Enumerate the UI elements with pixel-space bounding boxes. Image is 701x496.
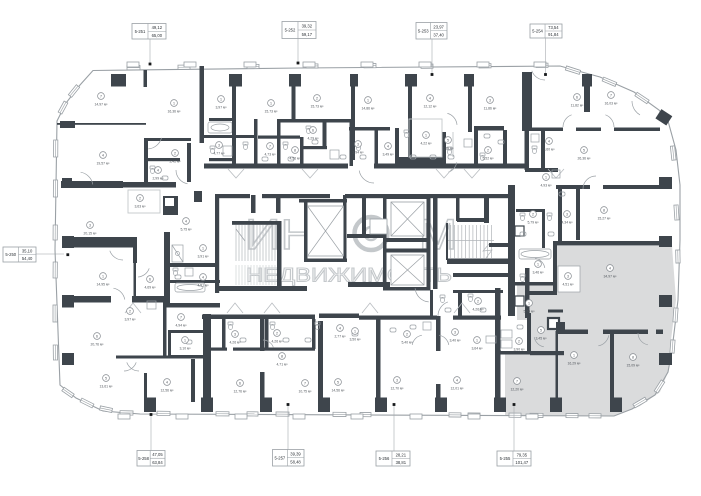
svg-text:58,48: 58,48 bbox=[290, 460, 301, 465]
svg-text:59,17: 59,17 bbox=[302, 32, 313, 37]
svg-text:14,97 м²: 14,97 м² bbox=[95, 103, 109, 107]
svg-text:28,21: 28,21 bbox=[396, 452, 407, 457]
svg-text:15,73 м²: 15,73 м² bbox=[311, 105, 325, 109]
svg-text:2: 2 bbox=[276, 331, 278, 335]
svg-text:3,09 м²: 3,09 м² bbox=[442, 147, 454, 151]
svg-text:3: 3 bbox=[89, 223, 91, 227]
svg-text:49,12: 49,12 bbox=[152, 25, 163, 30]
svg-text:3,63 м²: 3,63 м² bbox=[134, 205, 146, 209]
svg-text:2: 2 bbox=[532, 212, 534, 216]
svg-text:73,54: 73,54 bbox=[548, 25, 559, 30]
svg-text:5,40 м²: 5,40 м² bbox=[401, 341, 413, 345]
svg-text:1: 1 bbox=[354, 329, 356, 333]
svg-text:5: 5 bbox=[337, 380, 339, 384]
svg-text:1: 1 bbox=[537, 262, 539, 266]
svg-text:38,81: 38,81 bbox=[396, 460, 407, 465]
svg-text:5-256: 5-256 bbox=[379, 456, 390, 461]
svg-text:7: 7 bbox=[304, 381, 306, 385]
svg-text:1: 1 bbox=[476, 338, 478, 342]
svg-text:14,86 м²: 14,86 м² bbox=[362, 107, 376, 111]
svg-text:3,64 м²: 3,64 м² bbox=[471, 347, 483, 351]
svg-text:54,40: 54,40 bbox=[22, 256, 33, 261]
svg-text:4,93 м²: 4,93 м² bbox=[540, 184, 552, 188]
svg-text:7: 7 bbox=[610, 93, 612, 97]
svg-text:8: 8 bbox=[294, 148, 296, 152]
svg-text:47,05: 47,05 bbox=[152, 452, 163, 457]
svg-text:12,01 м²: 12,01 м² bbox=[451, 387, 465, 391]
svg-text:3,90 м²: 3,90 м² bbox=[513, 348, 525, 352]
svg-text:2: 2 bbox=[129, 309, 131, 313]
svg-text:5: 5 bbox=[105, 376, 107, 380]
svg-text:4,26 м²: 4,26 м² bbox=[472, 308, 484, 312]
svg-text:3: 3 bbox=[234, 332, 236, 336]
svg-text:4,29 м²: 4,29 м² bbox=[307, 137, 319, 141]
svg-text:2: 2 bbox=[518, 339, 520, 343]
svg-text:2: 2 bbox=[406, 332, 408, 336]
svg-text:2: 2 bbox=[174, 151, 176, 155]
svg-text:7: 7 bbox=[100, 94, 102, 98]
svg-text:1: 1 bbox=[545, 175, 547, 179]
svg-text:5: 5 bbox=[583, 148, 585, 152]
svg-text:3,60 м²: 3,60 м² bbox=[543, 148, 555, 152]
svg-text:3,49 м²: 3,49 м² bbox=[382, 153, 394, 157]
svg-text:3,91 м²: 3,91 м² bbox=[197, 255, 209, 259]
svg-text:6: 6 bbox=[312, 128, 314, 132]
svg-text:39,39: 39,39 bbox=[290, 451, 301, 456]
svg-text:2,99 м²: 2,99 м² bbox=[152, 177, 164, 181]
svg-text:3,40 м²: 3,40 м² bbox=[449, 339, 461, 343]
svg-text:5-250: 5-250 bbox=[5, 252, 16, 257]
svg-text:4: 4 bbox=[429, 96, 431, 100]
svg-text:2: 2 bbox=[487, 148, 489, 152]
svg-text:12,56 м²: 12,56 м² bbox=[161, 389, 175, 393]
svg-text:4: 4 bbox=[185, 219, 187, 223]
svg-text:16,29 м²: 16,29 м² bbox=[568, 362, 582, 366]
svg-text:5: 5 bbox=[540, 328, 542, 332]
svg-text:5,79 м²: 5,79 м² bbox=[527, 221, 539, 225]
svg-text:4,73 м²: 4,73 м² bbox=[264, 153, 276, 157]
svg-text:8: 8 bbox=[632, 355, 634, 359]
svg-text:6: 6 bbox=[576, 95, 578, 99]
svg-text:39,32: 39,32 bbox=[302, 23, 313, 28]
svg-text:15,27 м²: 15,27 м² bbox=[598, 217, 612, 221]
svg-text:4,22 м²: 4,22 м² bbox=[420, 142, 432, 146]
svg-text:2: 2 bbox=[316, 96, 318, 100]
svg-text:4,77 м²: 4,77 м² bbox=[213, 152, 225, 156]
svg-text:5-255: 5-255 bbox=[500, 456, 511, 461]
svg-text:7: 7 bbox=[180, 315, 182, 319]
svg-text:4,34 м²: 4,34 м² bbox=[561, 221, 573, 225]
svg-text:5-257: 5-257 bbox=[275, 455, 286, 460]
svg-text:12,76 м²: 12,76 м² bbox=[234, 390, 248, 394]
svg-text:10,75 м²: 10,75 м² bbox=[299, 390, 313, 394]
svg-text:3,45 м²: 3,45 м² bbox=[535, 337, 547, 341]
svg-text:2,42 м²: 2,42 м² bbox=[169, 160, 181, 164]
svg-text:79,35: 79,35 bbox=[517, 452, 528, 457]
svg-text:16,03 м²: 16,03 м² bbox=[605, 102, 619, 106]
svg-text:6: 6 bbox=[96, 334, 98, 338]
svg-text:4,51 м²: 4,51 м² bbox=[197, 284, 209, 288]
svg-text:63,84: 63,84 bbox=[152, 460, 163, 465]
svg-text:2: 2 bbox=[139, 196, 141, 200]
svg-text:1: 1 bbox=[367, 98, 369, 102]
svg-text:7: 7 bbox=[516, 379, 518, 383]
svg-text:16,36 м²: 16,36 м² bbox=[168, 110, 182, 114]
svg-text:1: 1 bbox=[102, 274, 104, 278]
svg-text:2: 2 bbox=[477, 299, 479, 303]
svg-text:4,51 м²: 4,51 м² bbox=[562, 283, 574, 287]
svg-text:14,95 м²: 14,95 м² bbox=[97, 283, 111, 287]
svg-text:8: 8 bbox=[281, 354, 283, 358]
svg-text:6: 6 bbox=[239, 381, 241, 385]
svg-text:4: 4 bbox=[456, 378, 458, 382]
svg-text:4,94 м²: 4,94 м² bbox=[175, 324, 187, 328]
svg-text:5-254: 5-254 bbox=[532, 29, 543, 34]
svg-text:12,12 м²: 12,12 м² bbox=[424, 105, 438, 109]
svg-text:14,56 м²: 14,56 м² bbox=[332, 389, 346, 393]
svg-text:3: 3 bbox=[566, 212, 568, 216]
svg-text:3: 3 bbox=[218, 143, 220, 147]
svg-text:3,10 м²: 3,10 м² bbox=[179, 347, 191, 351]
svg-text:5-251: 5-251 bbox=[135, 29, 146, 34]
svg-text:8: 8 bbox=[603, 208, 605, 212]
svg-text:5: 5 bbox=[447, 138, 449, 142]
svg-text:4,56 м²: 4,56 м² bbox=[289, 157, 301, 161]
svg-text:4: 4 bbox=[202, 275, 204, 279]
svg-text:11,86 м²: 11,86 м² bbox=[484, 107, 498, 111]
svg-text:4,26 м²: 4,26 м² bbox=[271, 340, 283, 344]
svg-text:5,74 м²: 5,74 м² bbox=[523, 310, 535, 314]
svg-text:37,40: 37,40 bbox=[433, 33, 444, 38]
svg-text:20,15 м²: 20,15 м² bbox=[84, 232, 98, 236]
svg-text:3,97 м²: 3,97 м² bbox=[124, 318, 136, 322]
svg-text:4: 4 bbox=[102, 153, 104, 157]
svg-text:1: 1 bbox=[425, 133, 427, 137]
svg-text:4: 4 bbox=[609, 266, 611, 270]
svg-text:4: 4 bbox=[339, 326, 341, 330]
svg-text:12,70 м²: 12,70 м² bbox=[391, 387, 405, 391]
svg-text:23,97: 23,97 bbox=[433, 24, 444, 29]
svg-text:5-252: 5-252 bbox=[285, 28, 296, 33]
svg-text:4,71 м²: 4,71 м² bbox=[276, 363, 288, 367]
svg-text:34,97 м²: 34,97 м² bbox=[604, 275, 618, 279]
svg-text:5-253: 5-253 bbox=[418, 28, 429, 33]
svg-text:5,75 м²: 5,75 м² bbox=[180, 228, 192, 232]
svg-text:1: 1 bbox=[573, 353, 575, 357]
svg-text:3: 3 bbox=[396, 378, 398, 382]
svg-text:4,69 м²: 4,69 м² bbox=[144, 286, 156, 290]
svg-text:13,61 м²: 13,61 м² bbox=[100, 385, 114, 389]
svg-text:3,97 м²: 3,97 м² bbox=[215, 106, 227, 110]
svg-text:4: 4 bbox=[548, 139, 550, 143]
svg-text:4,26 м²: 4,26 м² bbox=[229, 341, 241, 345]
svg-text:19,57 м²: 19,57 м² bbox=[97, 162, 111, 166]
svg-text:65,00: 65,00 bbox=[152, 33, 163, 38]
svg-text:15,09 м²: 15,09 м² bbox=[627, 364, 641, 368]
svg-text:3: 3 bbox=[567, 274, 569, 278]
svg-text:101,47: 101,47 bbox=[515, 460, 528, 465]
svg-text:4: 4 bbox=[166, 380, 168, 384]
svg-text:11,82 м²: 11,82 м² bbox=[571, 104, 585, 108]
svg-text:12,20 м²: 12,20 м² bbox=[511, 388, 525, 392]
svg-text:20,76 м²: 20,76 м² bbox=[91, 343, 105, 347]
svg-text:1: 1 bbox=[220, 97, 222, 101]
svg-text:35,10: 35,10 bbox=[22, 248, 33, 253]
svg-text:91,84: 91,84 bbox=[548, 32, 559, 37]
svg-text:1: 1 bbox=[528, 301, 530, 305]
svg-text:1: 1 bbox=[173, 101, 175, 105]
svg-text:3: 3 bbox=[489, 98, 491, 102]
svg-text:6: 6 bbox=[149, 277, 151, 281]
svg-text:3: 3 bbox=[454, 330, 456, 334]
svg-text:5,52 м²: 5,52 м² bbox=[482, 157, 494, 161]
svg-text:5-258: 5-258 bbox=[138, 456, 149, 461]
svg-text:1: 1 bbox=[270, 101, 272, 105]
svg-text:3,46 м²: 3,46 м² bbox=[532, 271, 544, 275]
svg-text:15,73 м²: 15,73 м² bbox=[265, 110, 279, 114]
svg-text:7: 7 bbox=[269, 144, 271, 148]
svg-text:4: 4 bbox=[387, 144, 389, 148]
svg-text:3: 3 bbox=[357, 142, 359, 146]
svg-text:2,94 м²: 2,94 м² bbox=[352, 151, 364, 155]
svg-text:1: 1 bbox=[184, 338, 186, 342]
svg-text:2,77 м²: 2,77 м² bbox=[334, 335, 346, 339]
svg-text:1: 1 bbox=[202, 246, 204, 250]
svg-text:3,50 м²: 3,50 м² bbox=[349, 338, 361, 342]
svg-text:26,36 м²: 26,36 м² bbox=[578, 157, 592, 161]
svg-text:4: 4 bbox=[157, 168, 159, 172]
